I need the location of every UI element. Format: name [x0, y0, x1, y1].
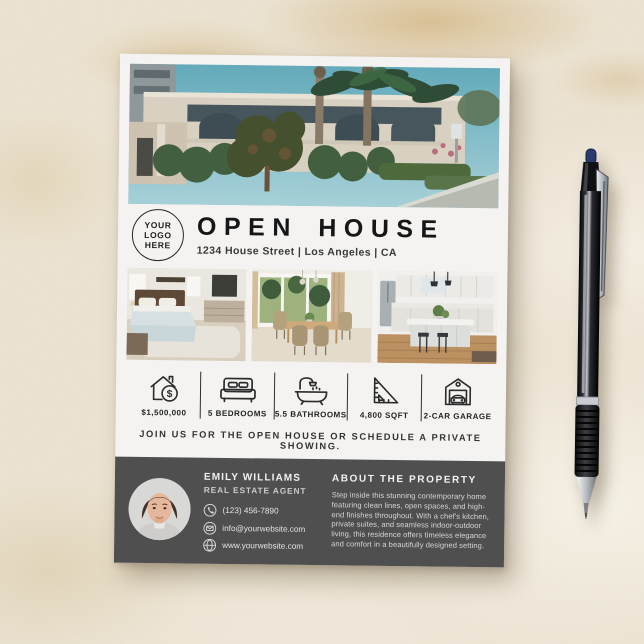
feature-label-price: $1,500,000 — [141, 408, 186, 418]
features-bar: $ $1,500,000 5 BEDROOMS — [128, 371, 495, 422]
bedroom-photo — [126, 268, 246, 361]
agent-title: REAL ESTATE AGENT — [204, 485, 326, 496]
contact-phone: (123) 456-7890 — [203, 504, 325, 518]
about-heading: ABOUT THE PROPERTY — [332, 473, 491, 486]
garage-car-icon — [442, 377, 474, 407]
logo-badge: YOUR LOGO HERE — [132, 209, 185, 262]
house-exterior-photo — [128, 64, 500, 209]
house-exterior-illustration — [128, 64, 500, 209]
contact-website: www.yourwebsite.com — [203, 539, 325, 553]
agent-portrait-illustration — [128, 478, 191, 541]
kitchen-illustration — [377, 271, 497, 364]
about-property: ABOUT THE PROPERTY Step inside this stun… — [331, 459, 491, 567]
agent-name: EMILY WILLIAMS — [204, 472, 326, 484]
dining-room-illustration — [252, 269, 372, 362]
flyer-title: OPEN HOUSE — [197, 215, 445, 243]
email-icon — [203, 521, 216, 534]
scene: YOUR LOGO HERE OPEN HOUSE 1234 House Str… — [0, 0, 644, 644]
phone-icon — [203, 504, 216, 517]
bed-icon — [217, 374, 257, 404]
about-text: Step inside this stunning contemporary h… — [331, 490, 491, 550]
title-row: YOUR LOGO HERE OPEN HOUSE 1234 House Str… — [118, 204, 509, 271]
feature-label-garage: 2-CAR GARAGE — [424, 411, 492, 421]
open-house-flyer: YOUR LOGO HERE OPEN HOUSE 1234 House Str… — [114, 54, 510, 568]
feature-bathrooms: 5.5 BATHROOMS — [273, 373, 347, 421]
pen-illustration — [563, 147, 614, 520]
feature-bedrooms: 5 BEDROOMS — [200, 372, 274, 420]
logo-text-line3: HERE — [145, 240, 171, 251]
contact-email-value: info@yourwebsite.com — [222, 523, 305, 533]
feature-sqft: 4,800 SQFT — [347, 373, 421, 421]
interior-photo-row — [126, 268, 497, 365]
bedroom-illustration — [126, 268, 246, 361]
house-dollar-icon: $ — [147, 373, 181, 403]
contact-phone-value: (123) 456-7890 — [222, 506, 278, 516]
contact-list: (123) 456-7890 info@yourwebsite.com — [203, 504, 326, 553]
agent-info: EMILY WILLIAMS REAL ESTATE AGENT (123) 4… — [203, 458, 326, 565]
agent-photo — [128, 478, 191, 541]
globe-icon — [203, 539, 216, 552]
bathtub-icon — [292, 375, 330, 405]
ballpoint-pen — [563, 147, 614, 520]
contact-email: info@yourwebsite.com — [203, 521, 325, 535]
logo-text-line2: LOGO — [144, 230, 172, 241]
contact-website-value: www.yourwebsite.com — [222, 541, 303, 551]
feature-label-bedrooms: 5 BEDROOMS — [208, 409, 267, 419]
property-address: 1234 House Street | Los Angeles | CA — [197, 245, 445, 260]
agent-footer: EMILY WILLIAMS REAL ESTATE AGENT (123) 4… — [114, 457, 505, 568]
title-block: OPEN HOUSE 1234 House Street | Los Angel… — [197, 215, 445, 260]
logo-text-line1: YOUR — [144, 220, 171, 231]
svg-text:$: $ — [167, 389, 173, 400]
kitchen-photo — [377, 271, 497, 364]
feature-garage: 2-CAR GARAGE — [420, 374, 494, 422]
set-square-icon — [368, 376, 400, 406]
feature-label-sqft: 4,800 SQFT — [360, 411, 409, 421]
feature-label-bathrooms: 5.5 BATHROOMS — [275, 410, 347, 420]
cta-text: JOIN US FOR THE OPEN HOUSE OR SCHEDULE A… — [115, 429, 505, 454]
feature-price: $ $1,500,000 — [128, 371, 201, 419]
dining-room-photo — [252, 269, 372, 362]
